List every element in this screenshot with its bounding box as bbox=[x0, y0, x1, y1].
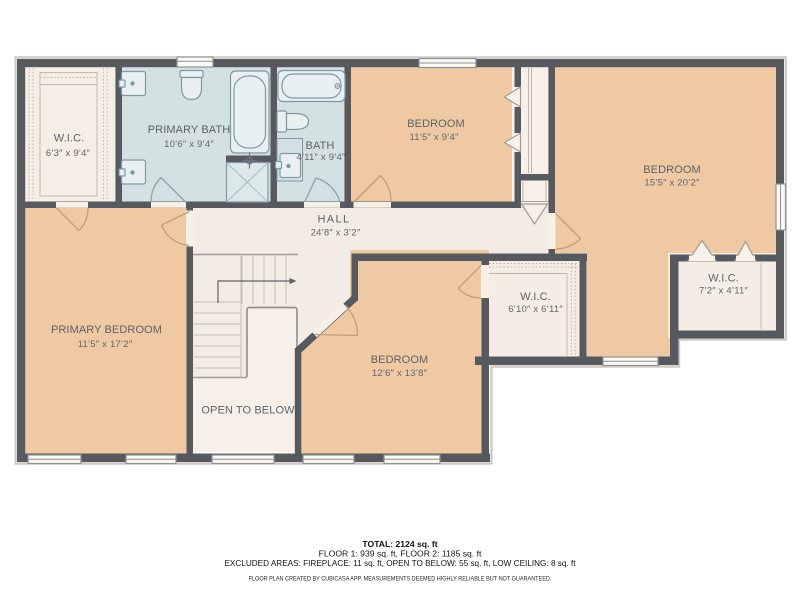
svg-text:BEDROOM: BEDROOM bbox=[643, 164, 701, 176]
svg-text:BATH: BATH bbox=[306, 140, 335, 152]
svg-text:OPEN TO BELOW: OPEN TO BELOW bbox=[201, 405, 295, 417]
svg-text:6’10″ x 6’11″: 6’10″ x 6’11″ bbox=[508, 304, 563, 315]
svg-text:FLOOR PLAN CREATED BY CUBICASA: FLOOR PLAN CREATED BY CUBICASA APP. MEAS… bbox=[249, 576, 552, 582]
svg-text:11’5″ x 9’4″: 11’5″ x 9’4″ bbox=[409, 132, 459, 143]
svg-text:7’2″ x 4’11″: 7’2″ x 4’11″ bbox=[699, 286, 749, 297]
svg-text:24’8″ x 3’2″: 24’8″ x 3’2″ bbox=[311, 228, 361, 239]
svg-text:11’5″ x 17’2″: 11’5″ x 17’2″ bbox=[78, 339, 133, 350]
svg-text:6’3″ x 9’4″: 6’3″ x 9’4″ bbox=[46, 148, 91, 159]
svg-text:W.I.C.: W.I.C. bbox=[520, 291, 551, 303]
svg-text:HALL: HALL bbox=[317, 214, 350, 226]
svg-text:BEDROOM: BEDROOM bbox=[407, 118, 465, 130]
svg-text:FLOOR 1: 939 sq. ft, FLOOR 2:: FLOOR 1: 939 sq. ft, FLOOR 2: 1185 sq. f… bbox=[319, 549, 482, 559]
svg-text:EXCLUDED AREAS: FIREPLACE: 11: EXCLUDED AREAS: FIREPLACE: 11 sq. ft, OP… bbox=[224, 559, 576, 568]
svg-text:BEDROOM: BEDROOM bbox=[371, 354, 429, 366]
svg-text:4’11″ x 9’4″: 4’11″ x 9’4″ bbox=[296, 152, 346, 163]
svg-text:TOTAL: 2124 sq. ft: TOTAL: 2124 sq. ft bbox=[362, 539, 437, 549]
svg-text:10’6″ x 9’4″: 10’6″ x 9’4″ bbox=[164, 139, 214, 150]
svg-text:PRIMARY BATH: PRIMARY BATH bbox=[148, 124, 231, 136]
svg-text:15’5″ x 20’2″: 15’5″ x 20’2″ bbox=[644, 178, 700, 189]
svg-text:12’6″ x 13’8″: 12’6″ x 13’8″ bbox=[372, 368, 428, 379]
svg-text:W.I.C.: W.I.C. bbox=[708, 273, 739, 285]
svg-text:PRIMARY BEDROOM: PRIMARY BEDROOM bbox=[51, 324, 162, 336]
svg-text:W.I.C.: W.I.C. bbox=[54, 133, 85, 145]
